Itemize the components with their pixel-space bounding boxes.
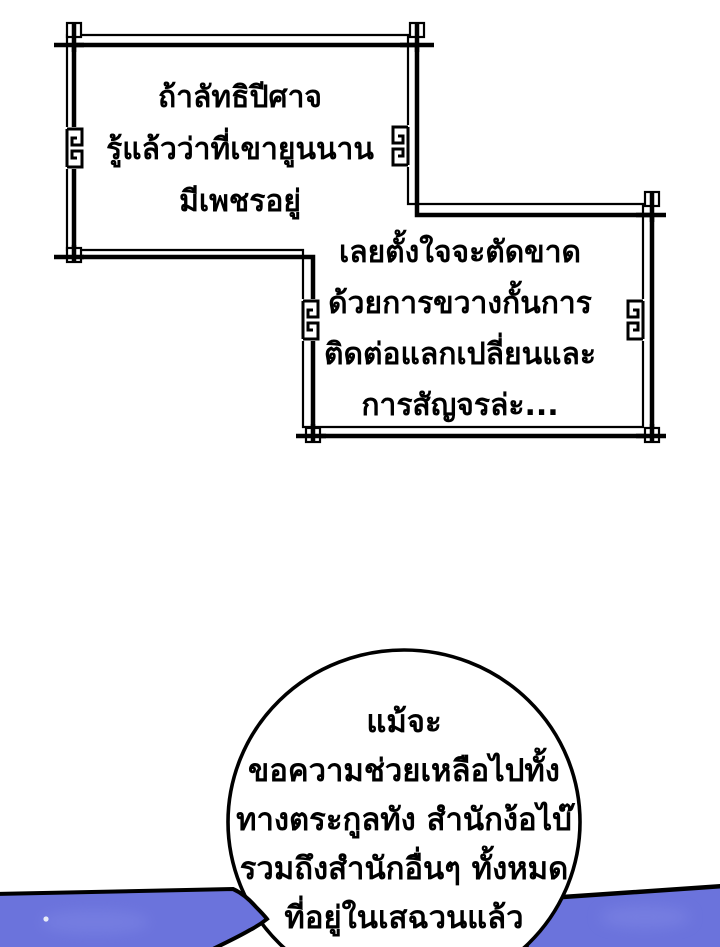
narration-box-2: เลยตั้งใจจะตัดขาด ด้วยการขวางกั้นการ ติด… bbox=[300, 227, 620, 431]
dialog-line: ที่อยู่ในเสฉวนแล้ว bbox=[224, 894, 584, 943]
comic-page: ถ้าลัทธิปีศาจ รู้แล้วว่าที่เขายูนนาน มีเ… bbox=[0, 0, 720, 947]
roof-highlight bbox=[40, 910, 150, 934]
dialog-line: ติดต่อแลกเปลี่ยนและ bbox=[300, 329, 620, 380]
dialog-line: รู้แล้วว่าที่เขายูนนาน bbox=[70, 124, 410, 176]
dialog-line: รวมถึงสำนักอื่นๆ ทั้งหมด bbox=[224, 845, 584, 894]
light-speck bbox=[43, 916, 48, 921]
dialog-line: ด้วยการขวางกั้นการ bbox=[300, 278, 620, 329]
dialog-line: เลยตั้งใจจะตัดขาด bbox=[300, 227, 620, 278]
roof-highlight bbox=[600, 906, 690, 928]
narration-box-1: ถ้าลัทธิปีศาจ รู้แล้วว่าที่เขายูนนาน มีเ… bbox=[70, 72, 410, 228]
dialog-line: แม้จะ bbox=[224, 698, 584, 747]
dialog-line: ขอความช่วยเหลือไปทั้ง bbox=[224, 747, 584, 796]
dialog-line: ถ้าลัทธิปีศาจ bbox=[70, 72, 410, 124]
speech-bubble-text: แม้จะ ขอความช่วยเหลือไปทั้ง ทางตระกูลทัง… bbox=[224, 698, 584, 943]
dialog-line: การสัญจรล่ะ... bbox=[300, 380, 620, 431]
dialog-line: มีเพชรอยู่ bbox=[70, 176, 410, 228]
dialog-line: ทางตระกูลทัง สำนักง้อไบ๊ bbox=[224, 796, 584, 845]
